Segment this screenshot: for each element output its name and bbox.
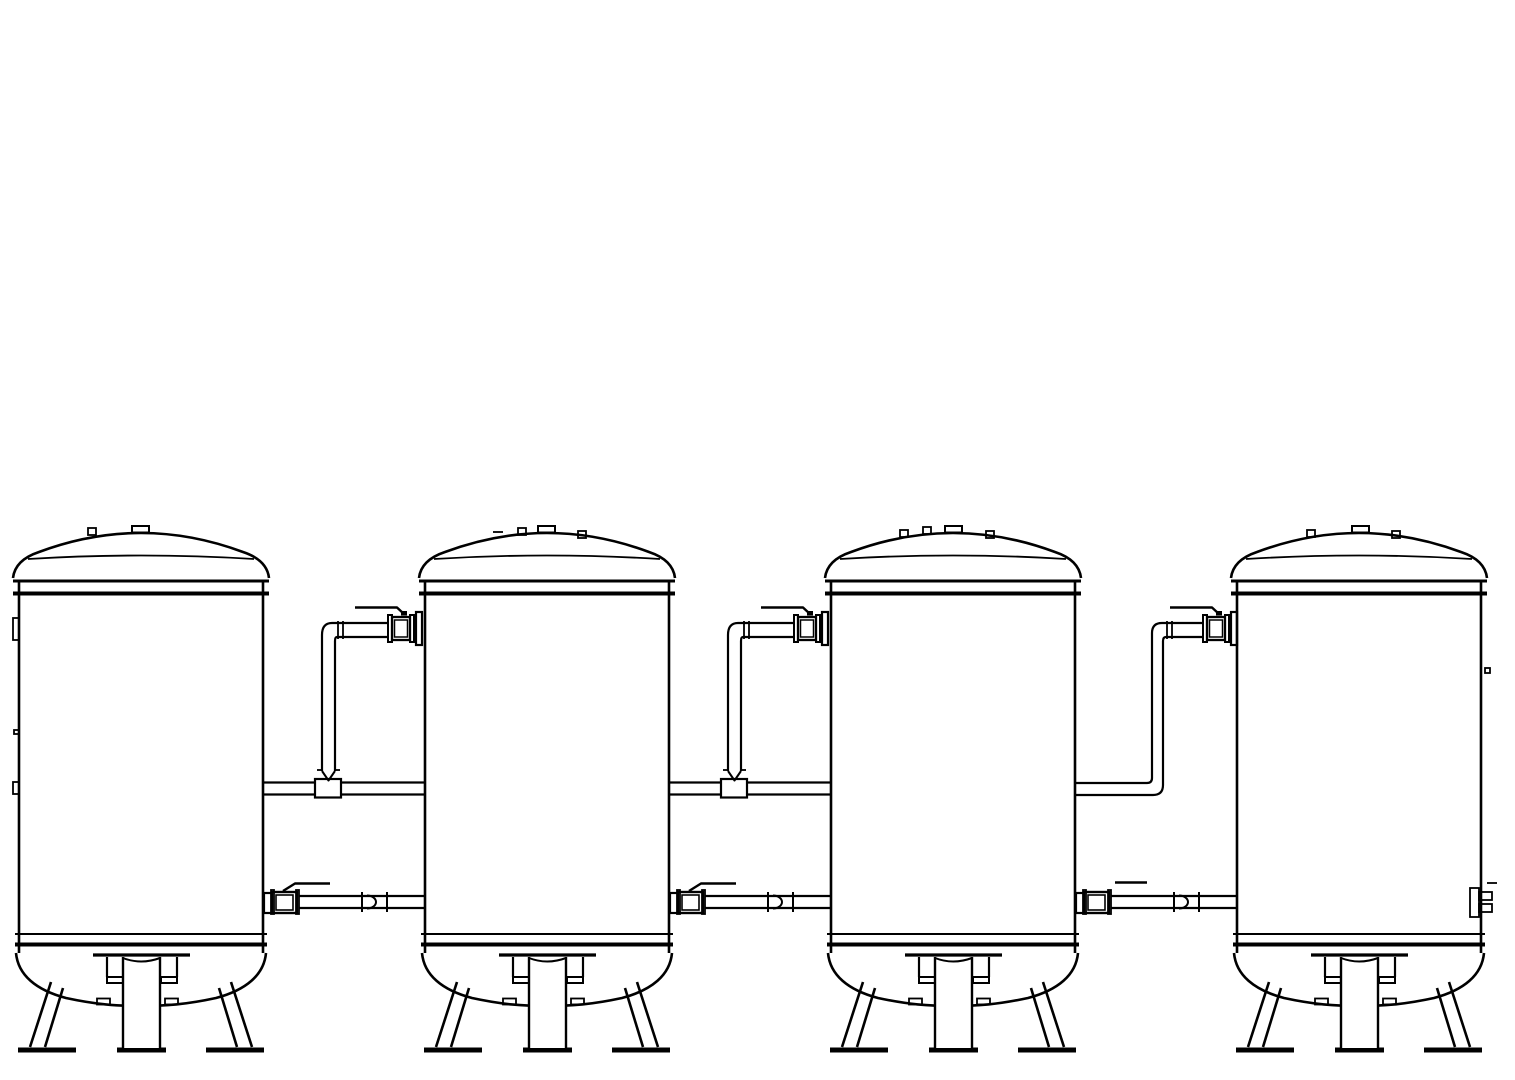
ball-valve-body-inner: [682, 895, 699, 910]
wall-tick: [14, 730, 19, 734]
pedestal-bracket-foot: [1325, 977, 1341, 983]
side-leg-line: [857, 988, 875, 1047]
tee-fitting: [315, 779, 341, 798]
upper-pipe-run-3: [1075, 608, 1237, 796]
valve-handle: [283, 884, 330, 892]
pedestal-bracket-foot: [567, 977, 583, 983]
side-leg-line: [1263, 988, 1281, 1047]
side-leg-line: [1031, 988, 1049, 1047]
ball-valve-body-inner: [395, 620, 408, 637]
side-leg-line: [625, 988, 643, 1047]
union-body: [773, 896, 782, 909]
pressure-tank-2: [419, 526, 675, 1050]
drop-pipe-line: [1075, 637, 1203, 795]
dome-weld-seam: [840, 556, 1066, 560]
ball-valve-body-inner: [276, 895, 293, 910]
ball-valve-body-inner: [1088, 895, 1105, 910]
tee-fitting: [721, 779, 747, 798]
pedestal-bracket-foot: [161, 977, 177, 983]
drop-pipe-line: [741, 637, 794, 771]
drawing-canvas: [0, 0, 1515, 1080]
pedestal-bracket-foot: [973, 977, 989, 983]
side-leg-line: [219, 988, 237, 1047]
drop-pipe-line: [322, 623, 388, 771]
wall-stub: [13, 618, 19, 640]
union-body: [1179, 896, 1188, 909]
side-leg-line: [45, 988, 63, 1047]
pedestal-bracket-foot: [107, 977, 123, 983]
ball-valve-body-inner: [1210, 620, 1223, 637]
drain-flange: [1470, 888, 1479, 917]
wall-stub: [13, 782, 19, 794]
top-nozzle-flanged: [1352, 526, 1369, 533]
valve-handle: [1170, 608, 1219, 615]
drop-pipe-line: [728, 623, 794, 771]
pressure-tank-4: [1231, 526, 1497, 1050]
lower-pipe-run-2: [670, 884, 831, 915]
valve-handle: [761, 608, 810, 615]
upper-pipe-run-1: [263, 608, 425, 798]
top-nozzle-small: [88, 528, 96, 535]
center-leg-column-fill: [530, 956, 565, 1048]
center-leg-column-fill: [936, 956, 971, 1048]
top-nozzle-flanged: [945, 526, 962, 533]
valve-handle: [689, 884, 736, 892]
pipe-flange: [416, 612, 422, 645]
lower-pipe-run-3: [1076, 883, 1237, 915]
pressure-tank-3: [825, 526, 1081, 1050]
wall-tick: [1485, 668, 1490, 673]
ball-valve-body-inner: [801, 620, 814, 637]
upper-pipe-run-2: [669, 608, 831, 798]
tank-piping-technical-drawing: [0, 0, 1515, 1080]
pedestal-bracket-foot: [919, 977, 935, 983]
pedestal-bracket-foot: [513, 977, 529, 983]
dome-weld-seam: [1246, 556, 1472, 560]
center-leg-column-fill: [1342, 956, 1377, 1048]
side-leg-line: [451, 988, 469, 1047]
lower-pipe-run-1: [264, 884, 425, 915]
side-leg-line: [1437, 988, 1455, 1047]
center-leg-column-fill: [124, 956, 159, 1048]
drop-pipe-line: [335, 637, 388, 771]
drop-pipe-line: [1075, 623, 1203, 783]
top-nozzle-flanged: [132, 526, 149, 533]
union-body: [367, 896, 376, 909]
valve-handle: [355, 608, 404, 615]
pipe-flange: [822, 612, 828, 645]
dome-weld-seam: [434, 556, 660, 560]
pedestal-bracket-foot: [1379, 977, 1395, 983]
pressure-tank-1: [13, 526, 269, 1050]
top-nozzle-flanged: [538, 526, 555, 533]
dome-weld-seam: [28, 556, 254, 560]
